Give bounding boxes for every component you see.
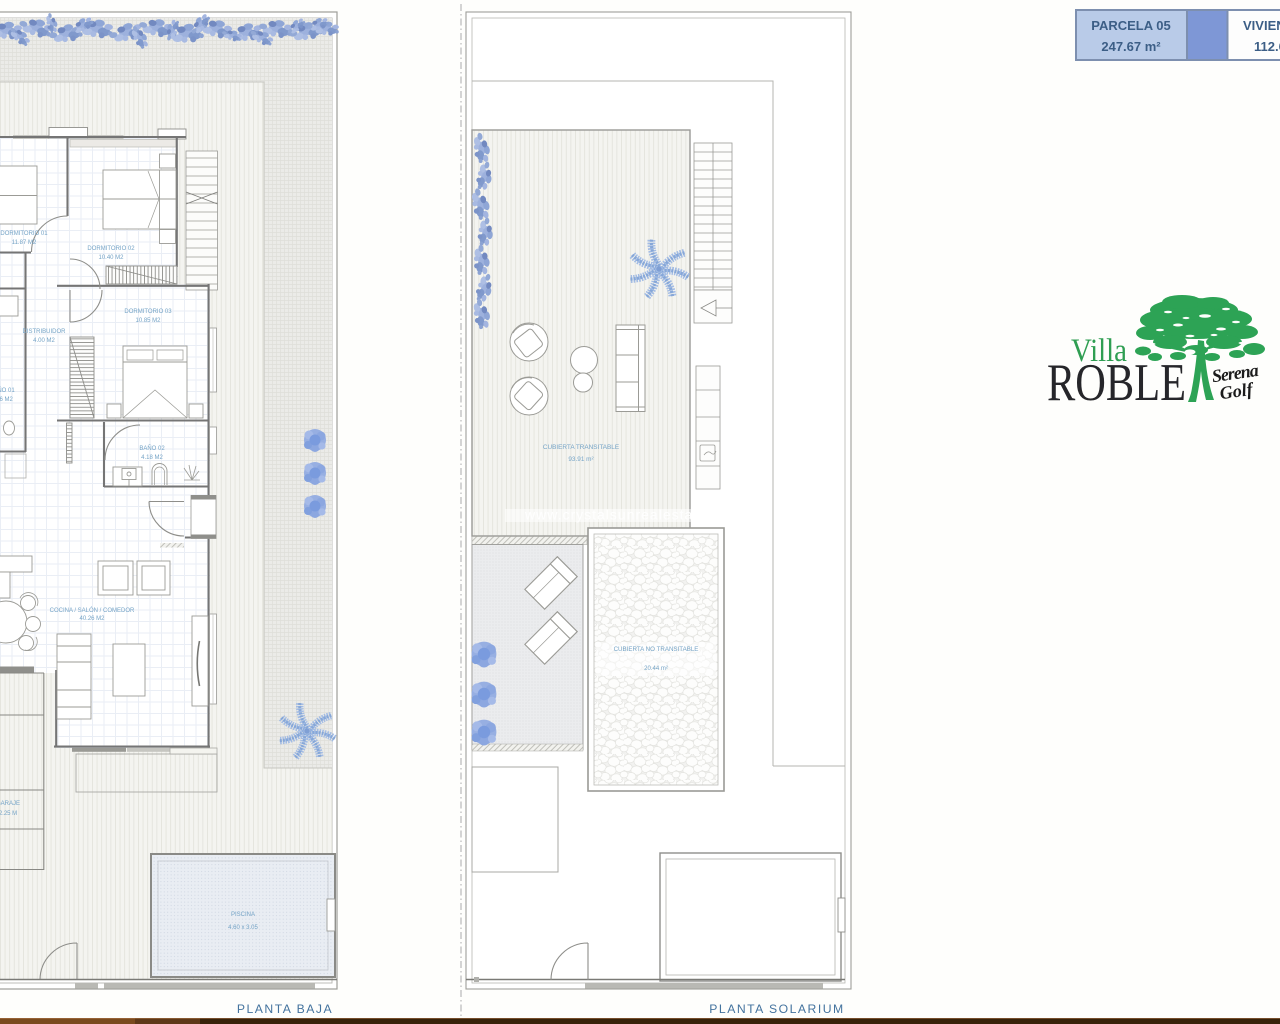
svg-text:3.96 M2: 3.96 M2 — [0, 397, 13, 403]
svg-text:VIVIENDA: VIVIENDA — [1243, 18, 1280, 33]
svg-text:40.26 M2: 40.26 M2 — [79, 616, 105, 622]
svg-text:DORMITORIO 01: DORMITORIO 01 — [0, 231, 48, 237]
svg-text:247.67 m²: 247.67 m² — [1101, 39, 1161, 54]
svg-text:PLANTA BAJA: PLANTA BAJA — [237, 1002, 333, 1016]
svg-text:DISTRIBUIDOR: DISTRIBUIDOR — [22, 329, 66, 335]
svg-text:CUBIERTA TRANSITABLE: CUBIERTA TRANSITABLE — [543, 444, 619, 451]
svg-text:www.crystalsunrealestate: www.crystalsunrealestate — [524, 507, 707, 523]
svg-text:CUBIERTA NO TRANSITABLE: CUBIERTA NO TRANSITABLE — [614, 646, 699, 653]
svg-text:2.25 M: 2.25 M — [0, 811, 17, 817]
svg-text:BAÑO 02: BAÑO 02 — [139, 445, 165, 452]
svg-text:4.00 M2: 4.00 M2 — [33, 338, 55, 344]
svg-text:Golf: Golf — [1218, 379, 1255, 404]
svg-text:10.85 M2: 10.85 M2 — [135, 318, 161, 324]
svg-text:4.18 M2: 4.18 M2 — [141, 455, 163, 461]
svg-text:11.87 M2: 11.87 M2 — [12, 240, 37, 246]
svg-text:GARAJE: GARAJE — [0, 801, 20, 807]
svg-text:DORMITORIO 02: DORMITORIO 02 — [87, 246, 135, 252]
svg-text:PLANTA SOLARIUM: PLANTA SOLARIUM — [709, 1002, 844, 1016]
svg-text:PARCELA 05: PARCELA 05 — [1091, 18, 1170, 33]
svg-text:93.91 m²: 93.91 m² — [568, 456, 593, 463]
svg-text:DORMITORIO 03: DORMITORIO 03 — [124, 309, 172, 315]
svg-text:ROBLE: ROBLE — [1047, 354, 1186, 412]
svg-text:112.65 m²: 112.65 m² — [1254, 39, 1280, 54]
svg-text:PISCINA: PISCINA — [231, 912, 255, 918]
svg-text:COCINA / SALÓN / COMEDOR: COCINA / SALÓN / COMEDOR — [50, 607, 135, 614]
svg-text:10.40 M2: 10.40 M2 — [98, 255, 124, 261]
svg-text:4.60 x 3.05: 4.60 x 3.05 — [228, 925, 258, 931]
svg-text:BAÑO 01: BAÑO 01 — [0, 387, 15, 394]
svg-text:20.44 m²: 20.44 m² — [644, 666, 668, 672]
